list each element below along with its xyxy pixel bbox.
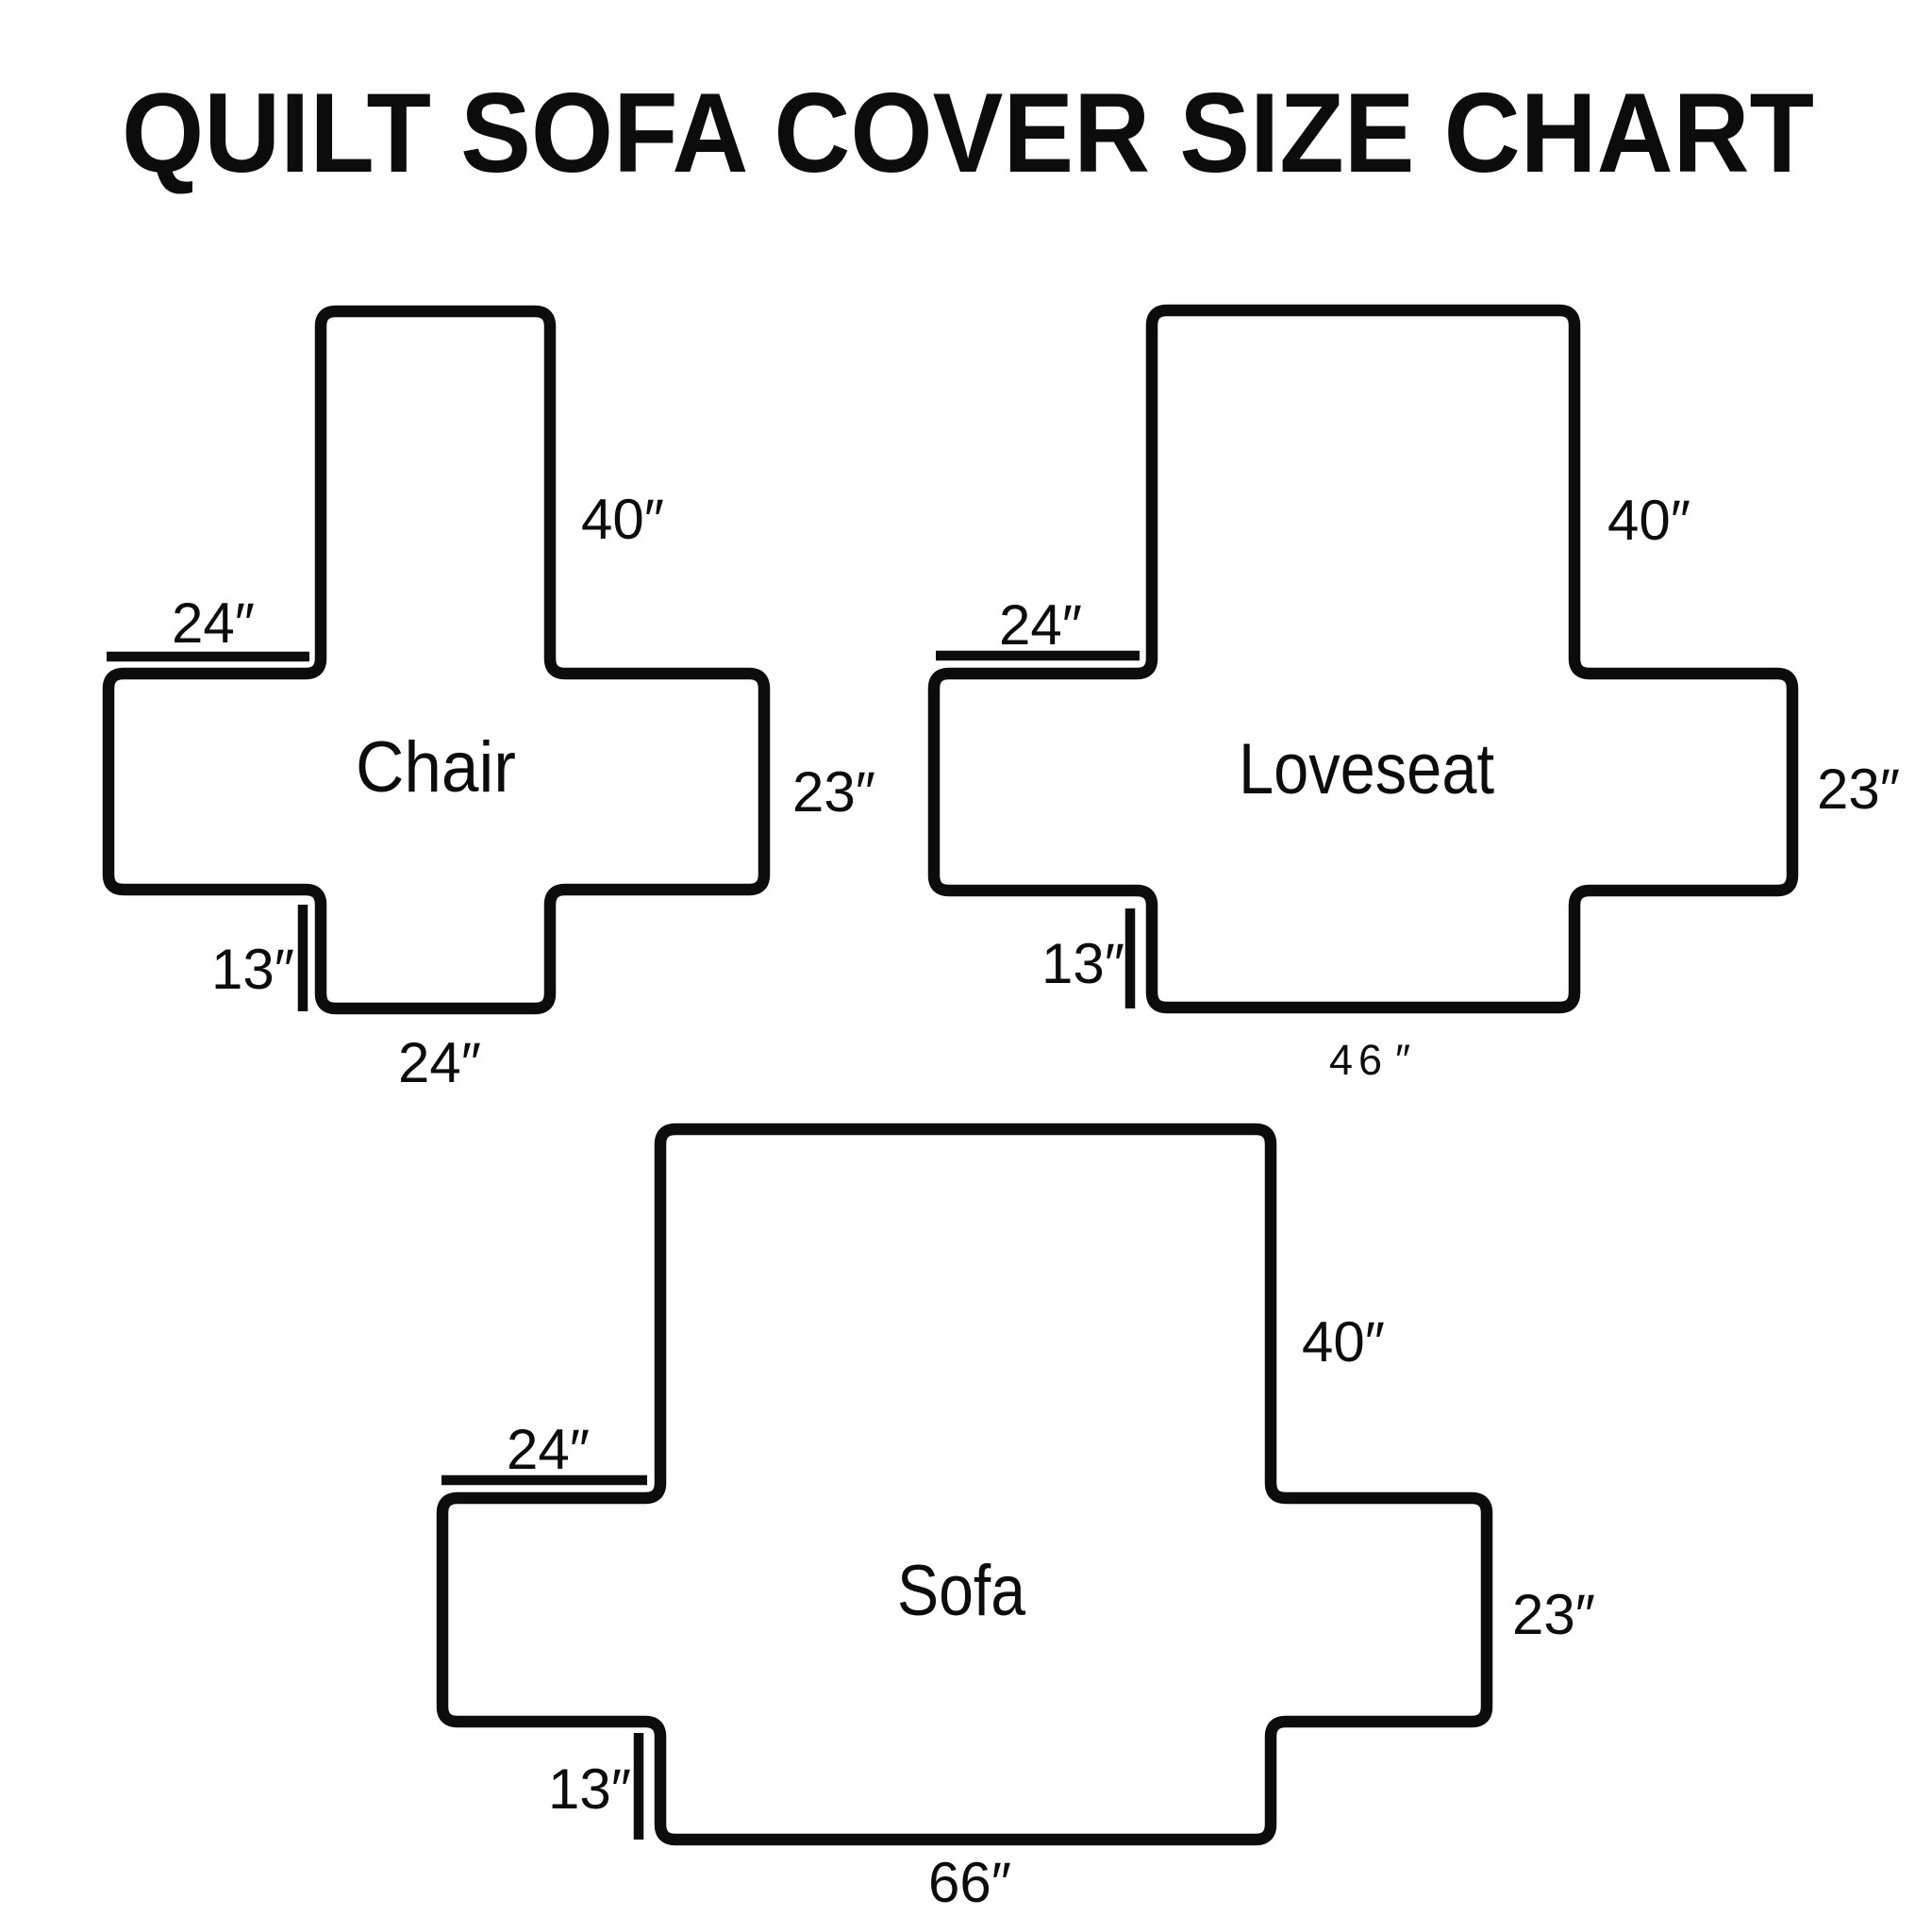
- svg-text:23″: 23″: [1512, 1583, 1595, 1646]
- svg-text:66″: 66″: [928, 1851, 1011, 1914]
- svg-text:13″: 13″: [1041, 932, 1124, 995]
- svg-text:46″: 46″: [1329, 1036, 1416, 1084]
- svg-text:13″: 13″: [211, 938, 294, 1001]
- svg-text:Loveseat: Loveseat: [1239, 729, 1494, 809]
- svg-text:24″: 24″: [999, 593, 1082, 657]
- svg-text:Chair: Chair: [356, 727, 516, 808]
- svg-text:40″: 40″: [1607, 489, 1690, 552]
- svg-text:Sofa: Sofa: [897, 1551, 1026, 1631]
- svg-text:13″: 13″: [548, 1757, 631, 1821]
- svg-text:QUILT SOFA COVER SIZE CHART: QUILT SOFA COVER SIZE CHART: [122, 70, 1814, 196]
- svg-text:40″: 40″: [1302, 1310, 1385, 1374]
- svg-text:23″: 23″: [792, 760, 875, 824]
- svg-text:24″: 24″: [398, 1031, 481, 1094]
- svg-text:40″: 40″: [581, 488, 664, 551]
- svg-text:24″: 24″: [172, 591, 255, 655]
- svg-text:23″: 23″: [1817, 758, 1900, 821]
- svg-text:24″: 24″: [507, 1418, 590, 1481]
